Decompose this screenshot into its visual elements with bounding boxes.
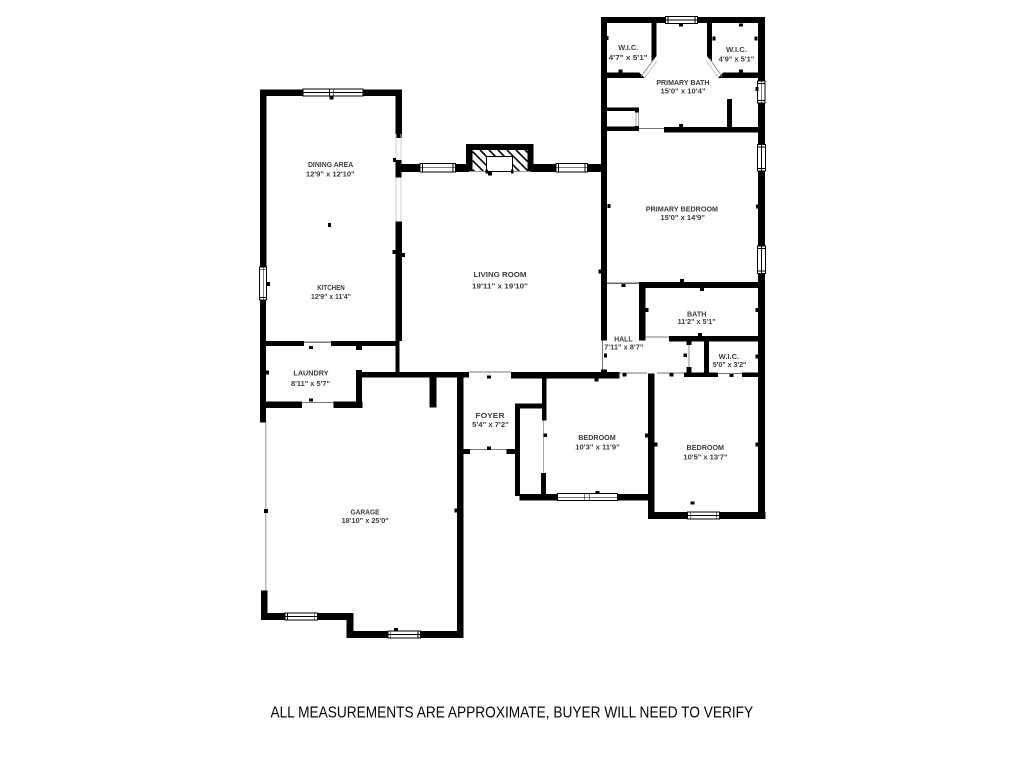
svg-text:LAUNDRY: LAUNDRY [293,369,328,378]
svg-text:W.I.C.: W.I.C. [726,45,747,54]
svg-text:8'11" x 5'7": 8'11" x 5'7" [291,379,330,388]
svg-text:15'0" x 10'4": 15'0" x 10'4" [661,87,706,96]
svg-text:LIVING ROOM: LIVING ROOM [474,270,527,279]
svg-text:10'5" x 13'7": 10'5" x 13'7" [683,452,728,461]
svg-text:FOYER: FOYER [475,411,505,420]
svg-text:15'0" x 14'9": 15'0" x 14'9" [660,213,705,222]
svg-text:BEDROOM: BEDROOM [687,443,725,452]
svg-text:12'9" x 12'10": 12'9" x 12'10" [306,170,355,179]
svg-text:W.I.C.: W.I.C. [618,43,638,52]
svg-text:5'0" x 3'2": 5'0" x 3'2" [713,360,747,369]
svg-text:7'11" x 8'7": 7'11" x 8'7" [604,343,644,352]
svg-text:10'3" x 11'9": 10'3" x 11'9" [575,442,620,451]
svg-text:4'9" x 5'1": 4'9" x 5'1" [719,55,755,64]
svg-text:18'10" x 25'0": 18'10" x 25'0" [342,516,390,525]
svg-text:KITCHEN: KITCHEN [317,283,345,292]
svg-text:19'11" x 19'10": 19'11" x 19'10" [472,282,529,291]
svg-text:12'9" x 11'4": 12'9" x 11'4" [311,292,351,301]
svg-text:5'4" x 7'2": 5'4" x 7'2" [472,420,509,429]
svg-text:DINING AREA: DINING AREA [308,160,354,169]
svg-text:4'7" x 5'1": 4'7" x 5'1" [609,53,649,62]
svg-text:BEDROOM: BEDROOM [578,433,616,442]
svg-text:11'2" x 5'1": 11'2" x 5'1" [678,317,717,326]
svg-text:PRIMARY BATH: PRIMARY BATH [656,78,709,87]
svg-text:ALL MEASUREMENTS ARE APPROXIMA: ALL MEASUREMENTS ARE APPROXIMATE, BUYER … [270,704,753,721]
